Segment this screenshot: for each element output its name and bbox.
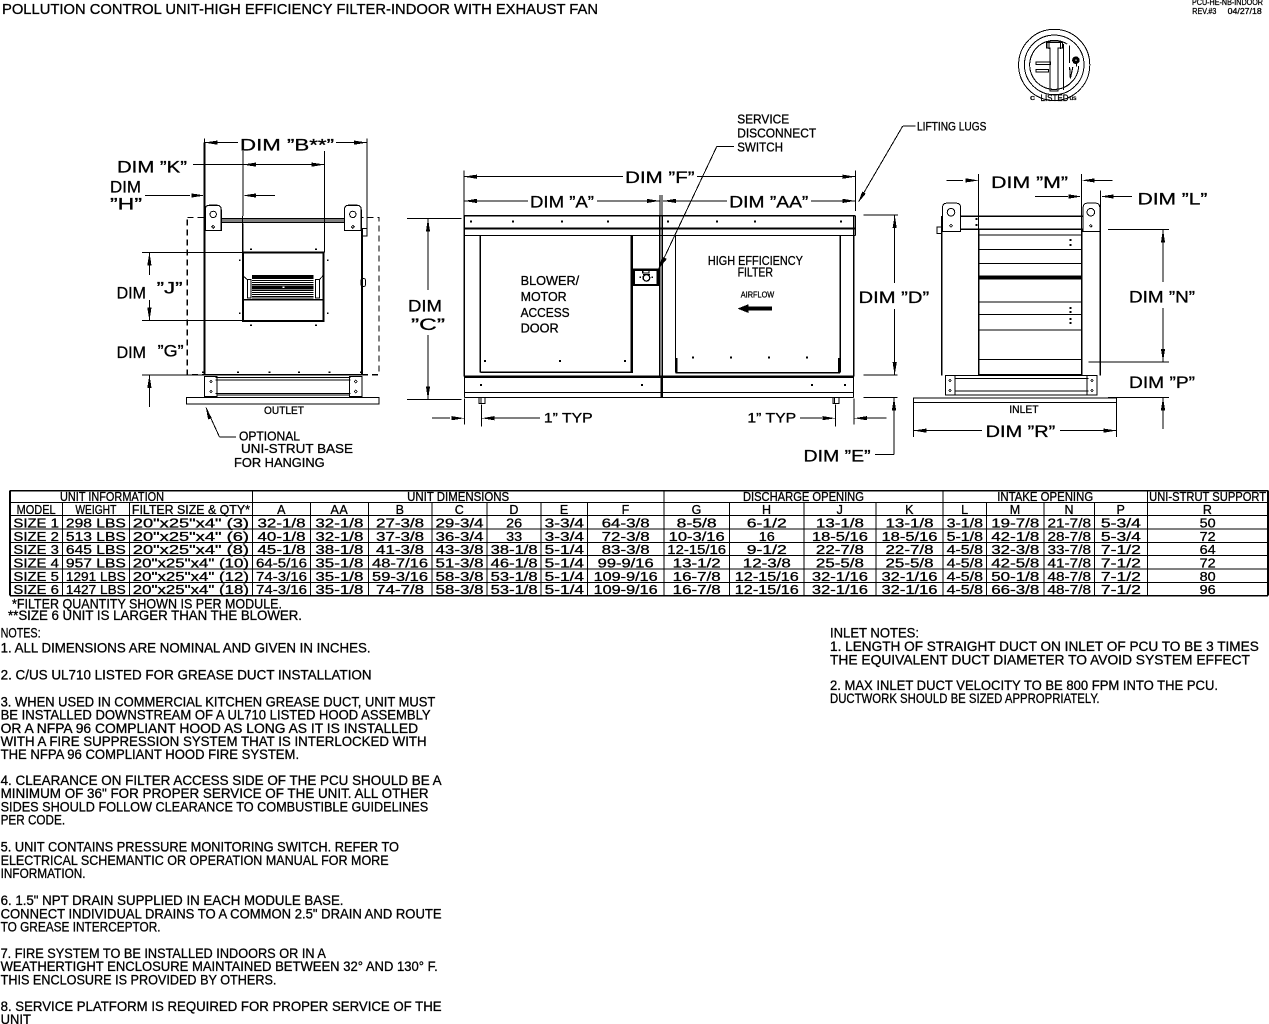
svg-text:DOOR: DOOR bbox=[521, 322, 559, 336]
svg-text:TO GREASE INTERCEPTOR.: TO GREASE INTERCEPTOR. bbox=[1, 919, 161, 934]
svg-text:DIM ”E”: DIM ”E” bbox=[804, 447, 871, 466]
svg-text:32-1/16: 32-1/16 bbox=[812, 583, 868, 597]
svg-text:BLOWER/: BLOWER/ bbox=[521, 274, 580, 288]
svg-text:37-3/8: 37-3/8 bbox=[376, 530, 424, 544]
svg-text:5-1/4: 5-1/4 bbox=[545, 543, 584, 557]
svg-text:5-1/4: 5-1/4 bbox=[545, 583, 584, 597]
svg-text:12-15/16: 12-15/16 bbox=[735, 583, 799, 597]
svg-text:us: us bbox=[1070, 96, 1077, 102]
svg-text:3-1/8: 3-1/8 bbox=[947, 517, 983, 531]
svg-text:DIM ”N”: DIM ”N” bbox=[1129, 288, 1195, 307]
svg-text:M: M bbox=[1010, 503, 1021, 517]
svg-text:3-3/4: 3-3/4 bbox=[545, 517, 584, 531]
svg-text:21-7/8: 21-7/8 bbox=[1048, 517, 1092, 531]
svg-text:99-9/16: 99-9/16 bbox=[598, 557, 654, 571]
svg-text:E: E bbox=[560, 503, 569, 517]
svg-text:72: 72 bbox=[1200, 557, 1216, 571]
svg-text:18-5/16: 18-5/16 bbox=[812, 530, 868, 544]
svg-text:13-1/8: 13-1/8 bbox=[816, 517, 864, 531]
svg-text:74-3/16: 74-3/16 bbox=[256, 583, 307, 597]
svg-text:DIM: DIM bbox=[117, 284, 146, 303]
svg-text:DIM ”A”: DIM ”A” bbox=[530, 192, 594, 211]
svg-text:OUTLET: OUTLET bbox=[264, 405, 304, 417]
svg-text:4-5/8: 4-5/8 bbox=[947, 570, 983, 584]
svg-text:DIM ”P”: DIM ”P” bbox=[1129, 373, 1195, 392]
svg-text:DISCONNECT: DISCONNECT bbox=[737, 126, 816, 141]
svg-text:38-1/8: 38-1/8 bbox=[315, 543, 363, 557]
svg-text:4-5/8: 4-5/8 bbox=[947, 543, 983, 557]
svg-text:”C”: ”C” bbox=[411, 315, 445, 334]
svg-text:LISTED: LISTED bbox=[1041, 93, 1069, 103]
svg-text:A: A bbox=[277, 503, 286, 517]
svg-text:59-3/16: 59-3/16 bbox=[372, 570, 428, 584]
svg-text:FILTER SIZE & QTY*: FILTER SIZE & QTY* bbox=[132, 503, 250, 517]
svg-text:NOTES:: NOTES: bbox=[1, 626, 41, 641]
svg-text:6-1/2: 6-1/2 bbox=[747, 517, 787, 531]
svg-text:7-1/2: 7-1/2 bbox=[1101, 570, 1141, 584]
svg-text:J: J bbox=[837, 503, 844, 517]
svg-text:INLET: INLET bbox=[1009, 404, 1039, 416]
svg-text:UNI-STRUT BASE: UNI-STRUT BASE bbox=[241, 441, 353, 456]
svg-text:32-3/8: 32-3/8 bbox=[991, 543, 1039, 557]
svg-text:”H”: ”H” bbox=[110, 195, 142, 214]
svg-text:P: P bbox=[1116, 503, 1125, 517]
svg-text:1” TYP: 1” TYP bbox=[747, 409, 796, 425]
svg-text:1427 LBS: 1427 LBS bbox=[66, 583, 126, 597]
svg-text:72-3/8: 72-3/8 bbox=[602, 530, 650, 544]
svg-text:UNIT DIMENSIONS: UNIT DIMENSIONS bbox=[407, 490, 509, 504]
svg-text:22-7/8: 22-7/8 bbox=[816, 543, 864, 557]
svg-text:28-7/8: 28-7/8 bbox=[1048, 530, 1092, 544]
svg-text:957 LBS: 957 LBS bbox=[66, 557, 126, 571]
svg-text:26: 26 bbox=[506, 517, 522, 531]
svg-text:20"x25"x4" (10): 20"x25"x4" (10) bbox=[133, 557, 249, 571]
svg-text:REV.#3: REV.#3 bbox=[1192, 6, 1216, 16]
svg-text:16-7/8: 16-7/8 bbox=[673, 570, 721, 584]
svg-text:16: 16 bbox=[759, 530, 775, 544]
svg-text:13-1/2: 13-1/2 bbox=[673, 557, 721, 571]
svg-text:5-3/4: 5-3/4 bbox=[1101, 530, 1141, 544]
svg-text:64: 64 bbox=[1200, 543, 1216, 557]
svg-text:AIRFLOW: AIRFLOW bbox=[741, 290, 774, 300]
svg-text:32-1/8: 32-1/8 bbox=[315, 530, 363, 544]
svg-text:5-1/8: 5-1/8 bbox=[947, 530, 983, 544]
svg-text:74-7/8: 74-7/8 bbox=[376, 583, 424, 597]
svg-text:SERVICE: SERVICE bbox=[737, 111, 789, 126]
svg-text:20"x25"x4" (12): 20"x25"x4" (12) bbox=[133, 570, 249, 584]
svg-text:27-3/8: 27-3/8 bbox=[376, 517, 424, 531]
svg-text:20"x25"x4" (18): 20"x25"x4" (18) bbox=[133, 583, 249, 597]
svg-text:SIZE 1: SIZE 1 bbox=[13, 517, 59, 531]
svg-text:1291 LBS: 1291 LBS bbox=[66, 570, 126, 584]
svg-text:46-1/8: 46-1/8 bbox=[491, 557, 538, 571]
svg-text:72: 72 bbox=[1200, 530, 1216, 544]
svg-text:20"x25"x4" (3): 20"x25"x4" (3) bbox=[133, 517, 249, 531]
svg-text:D: D bbox=[509, 503, 519, 517]
svg-text:42-5/8: 42-5/8 bbox=[991, 557, 1039, 571]
svg-text:32-1/8: 32-1/8 bbox=[258, 517, 306, 531]
svg-text:48-7/8: 48-7/8 bbox=[1048, 583, 1092, 597]
svg-text:DIM ”AA”: DIM ”AA” bbox=[729, 192, 808, 211]
svg-text:29-3/4: 29-3/4 bbox=[436, 517, 484, 531]
svg-text:7-1/2: 7-1/2 bbox=[1101, 543, 1141, 557]
svg-text:50-1/8: 50-1/8 bbox=[991, 570, 1039, 584]
svg-text:SWITCH: SWITCH bbox=[737, 140, 783, 155]
svg-text:45-1/8: 45-1/8 bbox=[258, 543, 306, 557]
svg-text:96: 96 bbox=[1200, 583, 1216, 597]
svg-text:64-5/16: 64-5/16 bbox=[256, 557, 307, 571]
svg-text:80: 80 bbox=[1200, 570, 1216, 584]
svg-text:UNIT INFORMATION: UNIT INFORMATION bbox=[60, 490, 164, 504]
svg-text:F: F bbox=[622, 503, 630, 517]
svg-text:G: G bbox=[692, 503, 702, 517]
svg-text:8-5/8: 8-5/8 bbox=[677, 517, 717, 531]
svg-text:POLLUTION CONTROL UNIT-HIGH EF: POLLUTION CONTROL UNIT-HIGH EFFICIENCY F… bbox=[2, 1, 598, 18]
svg-text:MOTOR: MOTOR bbox=[521, 290, 567, 304]
svg-text:DIM ”R”: DIM ”R” bbox=[986, 422, 1056, 441]
svg-text:35-1/8: 35-1/8 bbox=[315, 570, 363, 584]
svg-text:109-9/16: 109-9/16 bbox=[594, 583, 658, 597]
svg-text:38-1/8: 38-1/8 bbox=[491, 543, 538, 557]
svg-text:33: 33 bbox=[506, 530, 522, 544]
svg-text:1” TYP: 1” TYP bbox=[544, 409, 593, 425]
svg-text:5-1/4: 5-1/4 bbox=[545, 557, 584, 571]
svg-text:WEIGHT: WEIGHT bbox=[75, 503, 116, 517]
svg-text:19-7/8: 19-7/8 bbox=[991, 517, 1039, 531]
svg-text:H: H bbox=[762, 503, 772, 517]
svg-text:20"x25"x4" (6): 20"x25"x4" (6) bbox=[133, 530, 249, 544]
svg-text:53-1/8: 53-1/8 bbox=[491, 570, 538, 584]
svg-text:MODEL: MODEL bbox=[17, 503, 56, 517]
svg-text:35-1/8: 35-1/8 bbox=[315, 557, 363, 571]
svg-text:c: c bbox=[1030, 95, 1036, 102]
svg-text:THIS ENCLOSURE IS PROVIDED BY: THIS ENCLOSURE IS PROVIDED BY OTHERS. bbox=[1, 972, 277, 987]
svg-text:DIM ”K”: DIM ”K” bbox=[117, 158, 187, 177]
svg-text:PER CODE.: PER CODE. bbox=[1, 812, 66, 827]
svg-text:41-7/8: 41-7/8 bbox=[1048, 557, 1092, 571]
svg-text:35-1/8: 35-1/8 bbox=[315, 583, 363, 597]
svg-text:INTAKE OPENING: INTAKE OPENING bbox=[997, 490, 1093, 504]
svg-text:UNI-STRUT SUPPORT: UNI-STRUT SUPPORT bbox=[1149, 490, 1266, 504]
svg-text:C: C bbox=[455, 503, 465, 517]
svg-text:32-1/16: 32-1/16 bbox=[882, 570, 938, 584]
svg-text:THE EQUIVALENT DUCT DIAMETER T: THE EQUIVALENT DUCT DIAMETER TO AVOID SY… bbox=[830, 652, 1250, 667]
svg-text:SIZE 3: SIZE 3 bbox=[13, 543, 59, 557]
svg-text:48-7/16: 48-7/16 bbox=[372, 557, 428, 571]
svg-text:B: B bbox=[396, 503, 405, 517]
svg-text:UNIT: UNIT bbox=[1, 1012, 31, 1024]
svg-text:51-3/8: 51-3/8 bbox=[436, 557, 484, 571]
svg-text:18-5/16: 18-5/16 bbox=[882, 530, 938, 544]
svg-text:40-1/8: 40-1/8 bbox=[258, 530, 306, 544]
svg-text:1. ALL DIMENSIONS ARE NOMINAL: 1. ALL DIMENSIONS ARE NOMINAL AND GIVEN … bbox=[1, 641, 371, 656]
svg-text:32-1/16: 32-1/16 bbox=[812, 570, 868, 584]
svg-text:DISCHARGE OPENING: DISCHARGE OPENING bbox=[743, 490, 864, 504]
svg-text:16-7/8: 16-7/8 bbox=[673, 583, 721, 597]
svg-text:DIM: DIM bbox=[117, 343, 146, 362]
svg-text:N: N bbox=[1064, 503, 1074, 517]
svg-text:”G”: ”G” bbox=[158, 342, 184, 361]
svg-text:DIM ”L”: DIM ”L” bbox=[1138, 190, 1208, 209]
svg-text:25-5/8: 25-5/8 bbox=[886, 557, 934, 571]
svg-text:LIFTING LUGS: LIFTING LUGS bbox=[917, 122, 987, 134]
svg-text:13-1/8: 13-1/8 bbox=[886, 517, 934, 531]
svg-text:04/27/18: 04/27/18 bbox=[1228, 6, 1262, 16]
svg-text:32-1/16: 32-1/16 bbox=[882, 583, 938, 597]
svg-text:48-7/8: 48-7/8 bbox=[1048, 570, 1092, 584]
svg-text:53-1/8: 53-1/8 bbox=[491, 583, 538, 597]
svg-text:41-3/8: 41-3/8 bbox=[376, 543, 424, 557]
svg-text:64-3/8: 64-3/8 bbox=[602, 517, 650, 531]
svg-text:7-1/2: 7-1/2 bbox=[1101, 583, 1141, 597]
svg-text:**SIZE 6 UNIT IS LARGER THAN T: **SIZE 6 UNIT IS LARGER THAN THE BLOWER. bbox=[8, 608, 302, 623]
svg-text:7-1/2: 7-1/2 bbox=[1101, 557, 1141, 571]
svg-text:DUCTWORK SHOULD BE SIZED APPRO: DUCTWORK SHOULD BE SIZED APPROPRIATELY. bbox=[830, 691, 1100, 706]
svg-text:58-3/8: 58-3/8 bbox=[436, 570, 484, 584]
svg-text:8. SERVICE PLATFORM IS REQUIRE: 8. SERVICE PLATFORM IS REQUIRED FOR PROP… bbox=[1, 999, 442, 1014]
svg-text:58-3/8: 58-3/8 bbox=[436, 583, 484, 597]
svg-text:SIZE 2: SIZE 2 bbox=[13, 530, 59, 544]
svg-text:AA: AA bbox=[331, 503, 349, 517]
svg-text:12-15/16: 12-15/16 bbox=[735, 570, 799, 584]
svg-text:DIM: DIM bbox=[408, 297, 442, 316]
svg-text:9-1/2: 9-1/2 bbox=[747, 543, 787, 557]
svg-text:DIM ”B**”: DIM ”B**” bbox=[240, 136, 334, 155]
svg-text:FOR HANGING: FOR HANGING bbox=[234, 455, 325, 470]
svg-text:25-5/8: 25-5/8 bbox=[816, 557, 864, 571]
svg-text:INFORMATION.: INFORMATION. bbox=[1, 866, 86, 881]
svg-text:DIM ”F”: DIM ”F” bbox=[625, 168, 695, 187]
svg-text:42-1/8: 42-1/8 bbox=[991, 530, 1039, 544]
svg-text:22-7/8: 22-7/8 bbox=[886, 543, 934, 557]
svg-text:33-7/8: 33-7/8 bbox=[1048, 543, 1092, 557]
svg-text:3-3/4: 3-3/4 bbox=[545, 530, 584, 544]
svg-text:SIZE 5: SIZE 5 bbox=[13, 570, 59, 584]
svg-text:THE NFPA 96 COMPLIANT HOOD FIR: THE NFPA 96 COMPLIANT HOOD FIRE SYSTEM. bbox=[1, 747, 300, 762]
svg-text:5-3/4: 5-3/4 bbox=[1101, 517, 1141, 531]
svg-text:DIM ”D”: DIM ”D” bbox=[859, 288, 930, 307]
svg-text:36-3/4: 36-3/4 bbox=[436, 530, 484, 544]
svg-text:5-1/4: 5-1/4 bbox=[545, 570, 584, 584]
svg-text:K: K bbox=[905, 503, 914, 517]
svg-text:”J”: ”J” bbox=[157, 279, 183, 298]
svg-text:32-1/8: 32-1/8 bbox=[315, 517, 363, 531]
svg-text:ACCESS: ACCESS bbox=[521, 306, 570, 320]
svg-text:DIM ”M”: DIM ”M” bbox=[991, 173, 1068, 192]
svg-text:10-3/16: 10-3/16 bbox=[669, 530, 725, 544]
svg-text:20"x25"x4" (8): 20"x25"x4" (8) bbox=[133, 543, 249, 557]
svg-text:12-3/8: 12-3/8 bbox=[743, 557, 791, 571]
svg-text:298 LBS: 298 LBS bbox=[66, 517, 126, 531]
svg-text:L: L bbox=[961, 503, 968, 517]
svg-text:74-3/16: 74-3/16 bbox=[256, 570, 307, 584]
svg-text:SIZE 6: SIZE 6 bbox=[13, 583, 59, 597]
svg-text:50: 50 bbox=[1200, 517, 1216, 531]
svg-text:FILTER: FILTER bbox=[738, 265, 773, 279]
svg-text:R: R bbox=[1203, 503, 1213, 517]
svg-text:645 LBS: 645 LBS bbox=[66, 543, 126, 557]
svg-text:12-15/16: 12-15/16 bbox=[667, 543, 726, 557]
svg-text:83-3/8: 83-3/8 bbox=[602, 543, 650, 557]
svg-text:109-9/16: 109-9/16 bbox=[594, 570, 658, 584]
svg-text:4-5/8: 4-5/8 bbox=[947, 583, 983, 597]
svg-text:66-3/8: 66-3/8 bbox=[991, 583, 1039, 597]
svg-text:513 LBS: 513 LBS bbox=[66, 530, 126, 544]
svg-text:43-3/8: 43-3/8 bbox=[436, 543, 484, 557]
svg-text:2. C/US UL710 LISTED FOR GREAS: 2. C/US UL710 LISTED FOR GREASE DUCT INS… bbox=[1, 668, 372, 683]
svg-text:4-5/8: 4-5/8 bbox=[947, 557, 983, 571]
svg-text:SIZE 4: SIZE 4 bbox=[13, 557, 59, 571]
